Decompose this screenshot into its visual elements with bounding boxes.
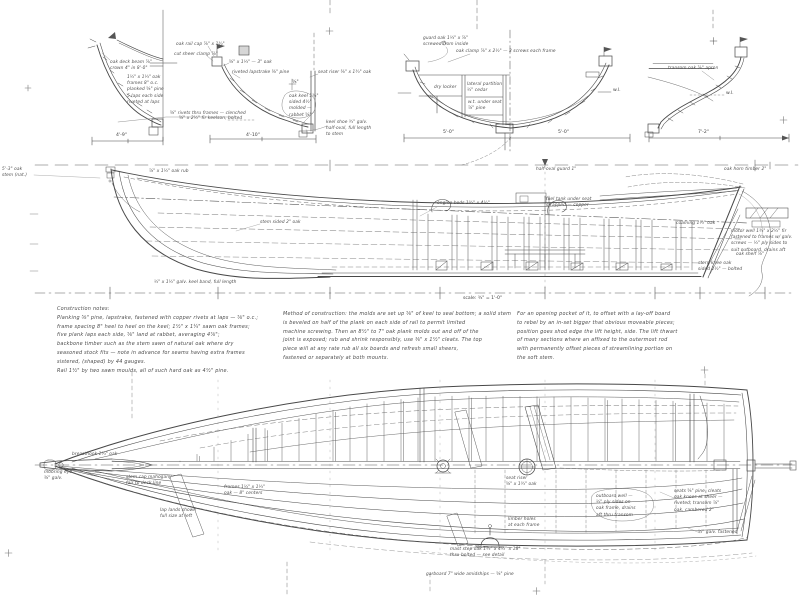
annotation-pl-galv: ½" galv. fastened bbox=[698, 530, 738, 536]
blueprint-page: Construction notes: Planking ⅝" pine, la… bbox=[0, 0, 800, 598]
annotation-pl-laps: lap lands shown full size at left bbox=[160, 508, 196, 520]
construction-notes-column-2: Method of construction: the molds are se… bbox=[283, 310, 525, 363]
annotation-pf-rub: ⅞" x 1½" oak rub bbox=[149, 169, 189, 175]
annotation-pl-seats: seats ⅝" pine, cleats oak knees at sheer… bbox=[674, 489, 723, 514]
annotation-pf-scale: scale: ¾" = 1'-0" bbox=[463, 296, 502, 302]
annotation-pf-shelf: oak shelf ⅞" bbox=[736, 252, 764, 258]
annotation-pl-frames: frames 1½" x 1¼" oak — 8" centers bbox=[224, 485, 265, 497]
annotation-s2-b3: ⅝" x 1¼" — 3" oak bbox=[229, 60, 272, 66]
annotation-s4-wl: w.l. bbox=[726, 91, 734, 97]
annotation-pf-stem: 5'-3" oak stem (nat.) bbox=[2, 167, 27, 179]
annotation-pl-well: outboard well — ½" ply sides on oak fram… bbox=[596, 494, 636, 519]
annotation-s3-c2: oak clamp ⅞" x 2½" — 3 screws each frame bbox=[456, 49, 556, 55]
annotation-s3-c3: dry locker bbox=[434, 85, 457, 91]
annotation-s3-dim-l: 5'-0" bbox=[443, 130, 454, 136]
annotation-s2-b4: riveted lapstrake ⅝" pine bbox=[232, 70, 289, 76]
construction-notes-column-3: For an opening pocket of it, to offset w… bbox=[517, 310, 709, 363]
annotation-pl-eye: mooring eye ⅜" galv. bbox=[44, 470, 72, 482]
annotation-pf-guard: half-oval guard 1" bbox=[536, 167, 576, 173]
annotation-s3-dim-r: 5'-0" bbox=[558, 130, 569, 136]
annotation-pf-keelband: ½" x 1½" galv. keel band, full length bbox=[154, 280, 236, 286]
annotation-s1-a2: 1½" x 1¼" oak frames 8" o.c. planked ⅝" … bbox=[127, 75, 164, 106]
annotation-pf-coaming: coaming 1¼" oak bbox=[676, 221, 715, 227]
annotation-s2-b6: ⅝" bbox=[292, 80, 299, 86]
annotation-pf-knee: stern knee oak sided 2½" — bolted bbox=[698, 261, 742, 273]
annotation-s4-d1: transom oak ⅞" apron bbox=[668, 66, 718, 72]
annotation-pf-beds: engine beds 1¾" x 4½" bbox=[437, 201, 490, 207]
annotation-pf-skeg: stem sided 2" oak bbox=[260, 220, 301, 226]
annotation-s2-dim: 4'-10" bbox=[246, 133, 260, 139]
annotation-pl-stemcap: stem cap mahogany fair to deck line bbox=[126, 475, 172, 487]
annotation-s1-dim: 4'-9" bbox=[116, 133, 127, 139]
annotation-pf-well: motor well 1¾" x 2½" fir fastened to fra… bbox=[731, 229, 792, 254]
annotation-s2-b8: keel shoe ¾" galv. half-oval, full lengt… bbox=[326, 120, 371, 139]
annotation-pl-garboard: garboard 7" wide amidships — ⅝" pine bbox=[426, 572, 514, 578]
annotation-s2-b5: seat riser ⅝" x 1¾" oak bbox=[318, 70, 371, 76]
annotation-s3-wl: w.l. bbox=[613, 88, 621, 94]
annotation-s4-dim: 7'-2" bbox=[698, 130, 709, 136]
annotation-layer: Construction notes: Planking ⅝" pine, la… bbox=[0, 0, 800, 598]
annotation-s3-c5: w.t. under seat ⅞" pine bbox=[468, 100, 502, 112]
annotation-pl-limber: limber holes at each frame bbox=[508, 517, 539, 529]
annotation-s2-b9: ⅝" x 2½" fir keelson, bolted bbox=[179, 116, 242, 122]
annotation-s2-b2: cut sheer clamp ⅞" bbox=[174, 52, 218, 58]
annotation-pl-breasthook: breasthook 1¾" oak bbox=[72, 452, 117, 458]
annotation-pl-maststep: mast step oak 1¾" x 4½" x 18" thru-bolte… bbox=[450, 547, 521, 559]
annotation-s2-b1: oak rail cap ⅞" x 1¾" bbox=[176, 42, 225, 48]
annotation-s3-c4: lateral partition ½" cedar bbox=[467, 82, 502, 94]
annotation-s2-b7: oak keel 1¾" sided 4½" molded — rabbet ⅝… bbox=[289, 94, 319, 119]
annotation-pl-riser: seat riser ⅝" x 1¾" oak bbox=[506, 476, 537, 488]
annotation-pf-tank: fuel tank under seat strapped — copper bbox=[546, 197, 592, 209]
annotation-pf-horn: oak horn timber 2" bbox=[724, 167, 766, 173]
annotation-s3-c1: guard oak 1¼" x ⅞" screwed from inside bbox=[423, 36, 468, 48]
construction-notes-column-1: Construction notes: Planking ⅝" pine, la… bbox=[57, 305, 295, 376]
annotation-s1-a1: oak deck beam ⅞" crown 4" in 8'-0" bbox=[110, 60, 152, 72]
